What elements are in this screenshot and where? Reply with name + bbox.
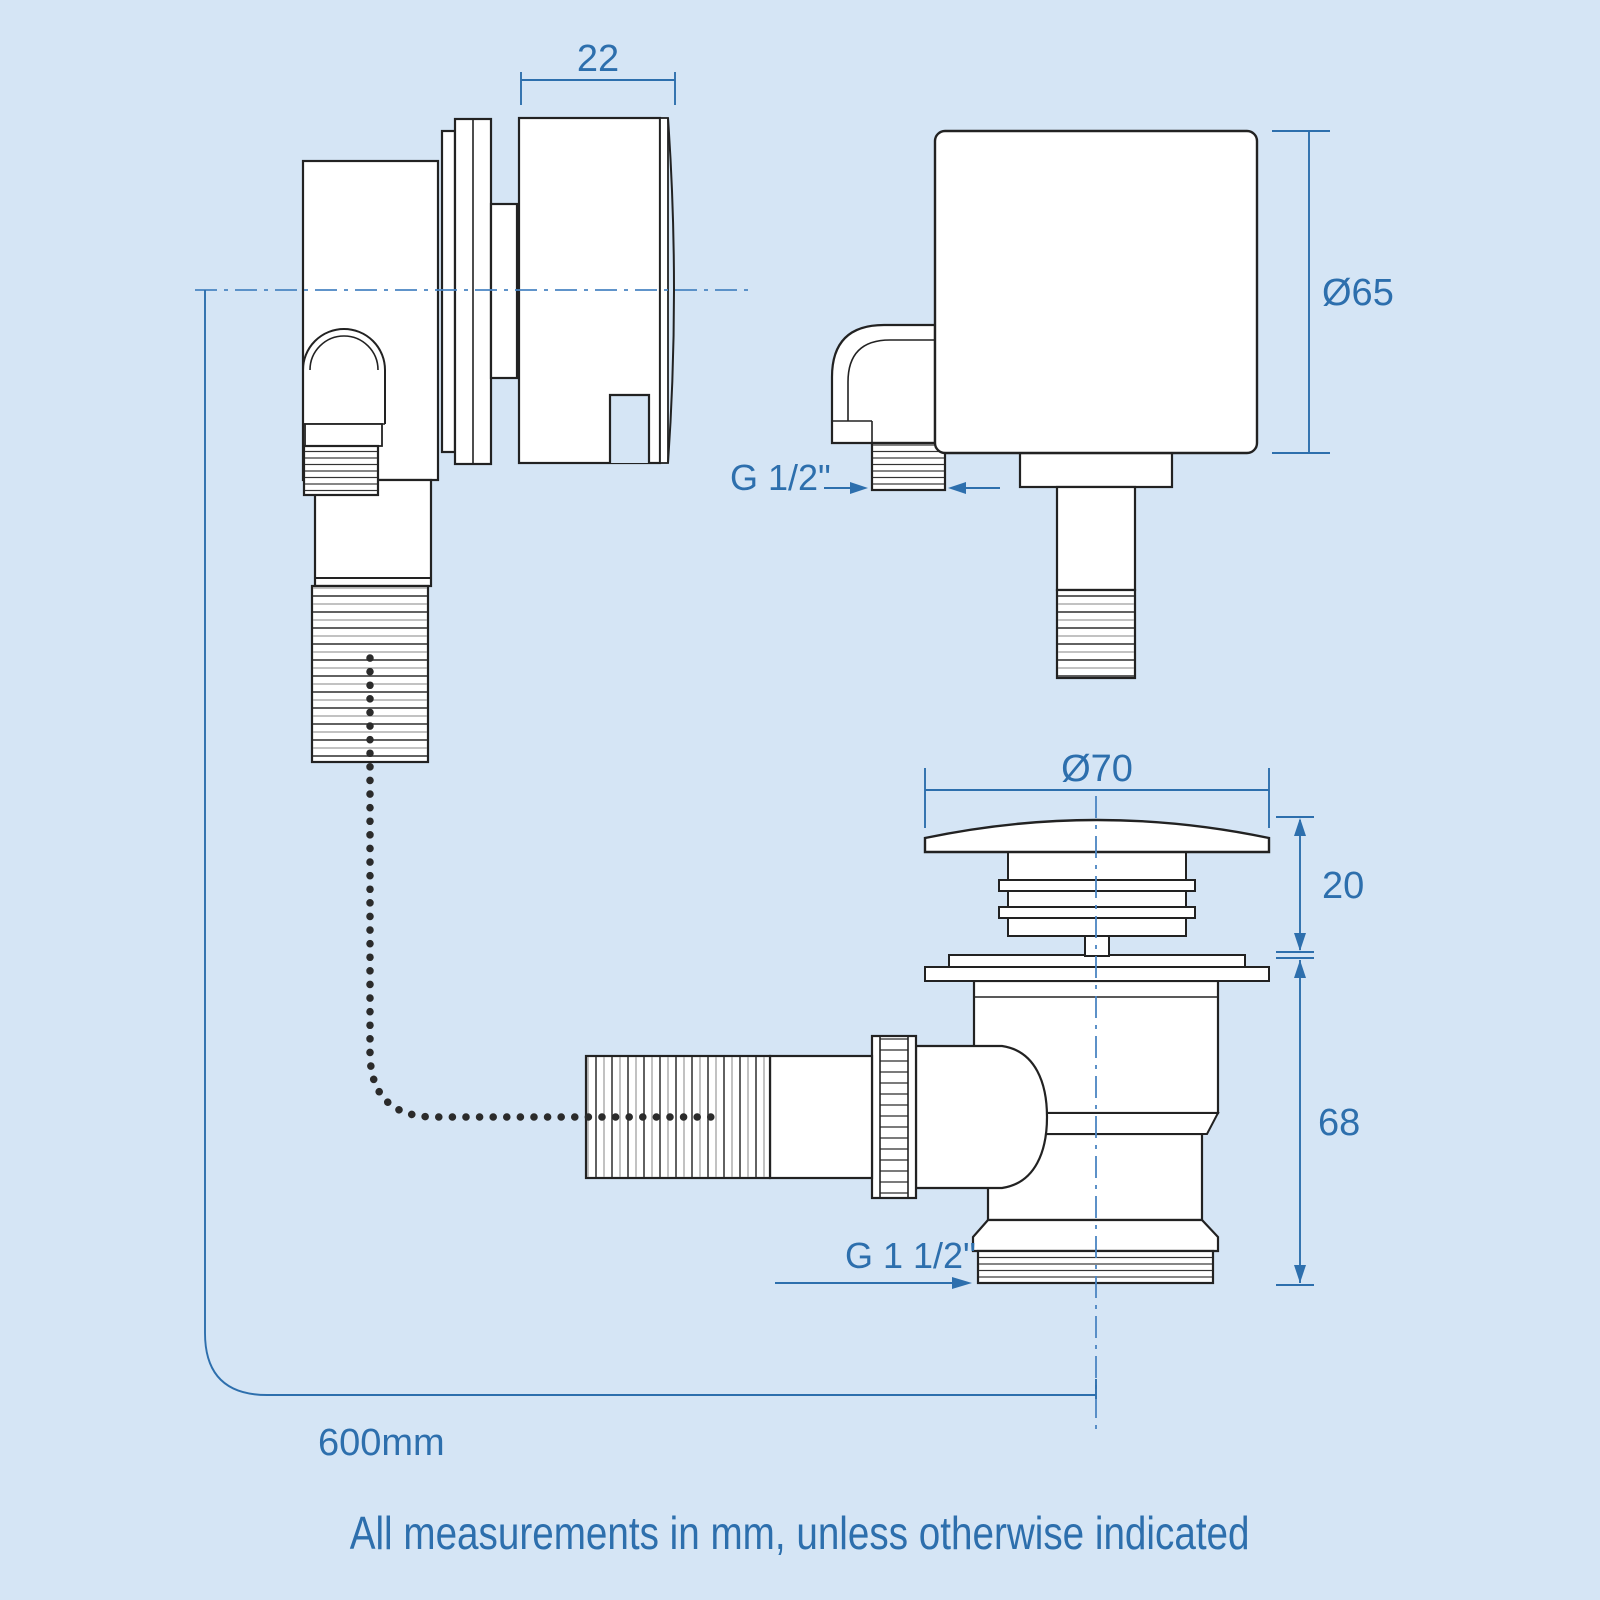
waste-flange-plate [925, 967, 1269, 981]
plug-neck [1008, 852, 1186, 880]
face-cap-notch [610, 395, 649, 463]
cap-neck [491, 204, 517, 378]
plug-band [1008, 891, 1186, 907]
side-inlet-boss [916, 1046, 1047, 1188]
plug-lower-ring [1008, 918, 1186, 936]
inlet-pipe-end [770, 1056, 872, 1178]
background [0, 0, 1600, 1600]
plug-seal-ring-1 [999, 880, 1195, 891]
front-ribbed-hose-ribs [1057, 590, 1135, 678]
technical-drawing-page: 22 Ø65 G 1/2" Ø70 20 68 [0, 0, 1600, 1600]
dim-20-label: 20 [1322, 865, 1364, 907]
wall-flange-plate-1 [442, 131, 455, 452]
plug-stem [1085, 936, 1109, 956]
footer-note-row: All measurements in mm, unless otherwise… [0, 1506, 1600, 1560]
elbow-collar [305, 424, 382, 446]
drawing-canvas: 22 Ø65 G 1/2" Ø70 20 68 [0, 0, 1600, 1600]
plug-seal-ring-2 [999, 907, 1195, 918]
elbow-thread-ribs [304, 446, 378, 495]
front-outlet-pipe [1057, 487, 1135, 590]
front-elbow-thread-ribs [872, 443, 945, 490]
measurement-note: All measurements in mm, unless otherwise… [350, 1506, 1250, 1560]
dim-22-label: 22 [577, 38, 619, 80]
dim-g112-label: G 1 1/2" [845, 1235, 976, 1276]
dim-600-label: 600mm [318, 1422, 445, 1464]
compression-nut-knurling [880, 1036, 908, 1198]
faceplate-neck [1020, 453, 1172, 487]
dim-68-label: 68 [1318, 1102, 1360, 1144]
dim-g12-label: G 1/2" [730, 457, 831, 498]
dim-65-label: Ø65 [1322, 272, 1394, 314]
square-faceplate [935, 131, 1257, 453]
dim-70-label: Ø70 [1061, 748, 1133, 790]
